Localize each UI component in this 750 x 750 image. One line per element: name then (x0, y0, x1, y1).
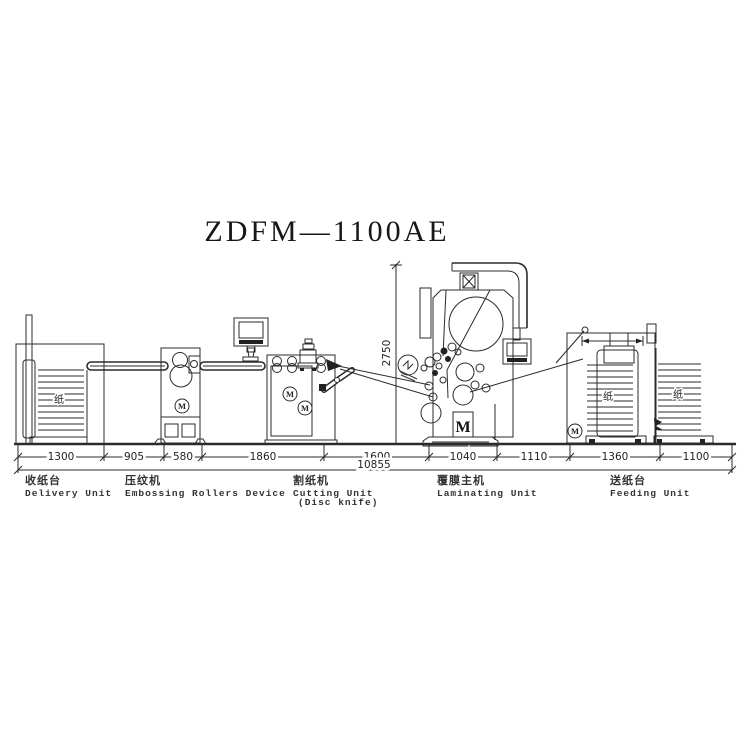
motor-label: M (301, 403, 309, 413)
dimension-system: 1300 905 580 1860 1600 1040 1110 1360 11… (14, 444, 736, 474)
x-brace-box (463, 275, 475, 288)
nip-roller-lower (453, 385, 473, 405)
motor-label: M (286, 389, 294, 399)
paper-label-feeder: 纸 (603, 390, 613, 403)
dim-1100: 1100 (683, 451, 710, 463)
paper-label-delivery: 纸 (54, 393, 64, 406)
dim-1040: 1040 (450, 451, 477, 463)
label-delivery-en: Delivery Unit (25, 488, 112, 499)
conveyor-delivery-to-embossing (87, 362, 168, 370)
machine-diagram: ZDFM—1100AE 纸 M (0, 0, 750, 750)
label-delivery-zh: 收纸台 (25, 473, 61, 487)
cutting-unit: M M (265, 339, 352, 444)
label-laminating-en: Laminating Unit (437, 488, 538, 499)
diagram-title: ZDFM—1100AE (204, 215, 449, 248)
feed-board (470, 327, 588, 392)
dim-580: 580 (173, 451, 193, 463)
nip-roller-upper (456, 363, 474, 381)
dim-1110: 1110 (521, 451, 548, 463)
dim-total: 10855 (357, 459, 390, 471)
suction-head (604, 346, 634, 363)
monitor-screen (507, 343, 527, 356)
label-cutting-en2: (Disc knife) (298, 497, 378, 508)
label-feeding-en: Feeding Unit (610, 488, 690, 499)
dim-1360: 1360 (602, 451, 629, 463)
height-dimension: 2750 (381, 261, 402, 444)
web-exit-guide (326, 359, 342, 371)
film-roll (398, 355, 418, 381)
idler-roller (421, 403, 441, 423)
dim-1300: 1300 (48, 451, 75, 463)
conveyor-embossing-to-cutting (200, 362, 265, 370)
feeding-unit: 纸 M (567, 324, 656, 443)
dim-905: 905 (124, 451, 144, 463)
label-laminating-zh: 覆膜主机 (437, 473, 485, 487)
diagram-page: ZDFM—1100AE 纸 M (0, 0, 750, 750)
laminating-unit: M (398, 263, 531, 446)
monitor-arm-inner (452, 271, 519, 328)
suction-head-top (610, 333, 628, 346)
height-dim-value: 2750 (381, 340, 393, 367)
label-feeding-zh: 送纸台 (609, 473, 646, 487)
spare-paper-stack: 纸 (654, 348, 713, 443)
motor-label: M (455, 419, 470, 436)
monitor-screen (239, 322, 263, 338)
delivery-pole (26, 315, 32, 444)
motor-label: M (178, 401, 186, 411)
laminating-drum (449, 297, 503, 351)
delivery-unit: 纸 (16, 315, 104, 444)
paper-label-spare: 纸 (673, 388, 683, 401)
laminator-monitor (503, 339, 531, 364)
label-embossing-zh: 压纹机 (125, 473, 161, 487)
label-cutting-zh: 割纸机 (293, 473, 329, 487)
control-monitor-stand (234, 318, 268, 361)
motor-label: M (571, 426, 579, 436)
roller-cluster (421, 343, 461, 401)
unit-labels: 收纸台 Delivery Unit 压纹机 Embossing Rollers … (25, 473, 690, 508)
feeder-crossbar (582, 336, 643, 346)
dim-1860: 1860 (250, 451, 277, 463)
label-embossing-en: Embossing Rollers Device (125, 488, 286, 499)
